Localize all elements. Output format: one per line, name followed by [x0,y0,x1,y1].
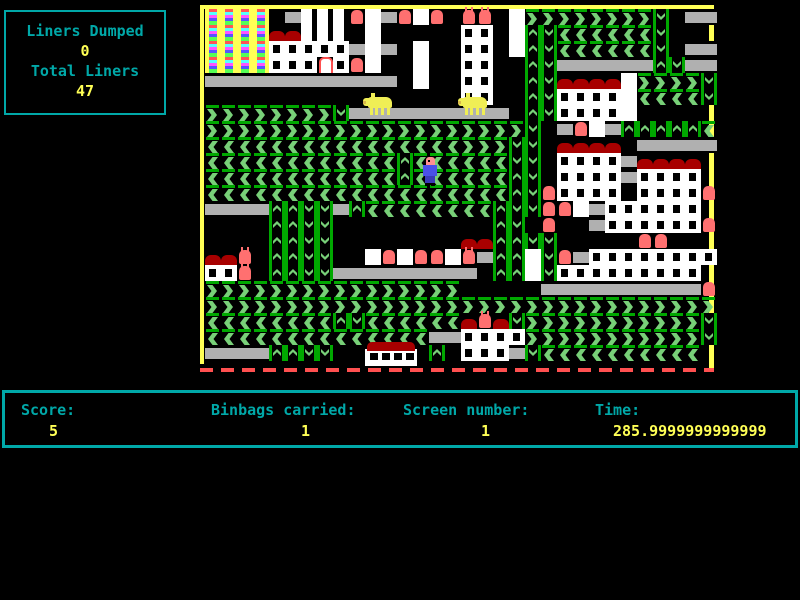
tile-conveyor-up [285,217,301,233]
tile-building-window [637,185,653,201]
tile-road [589,217,605,233]
tile-building-wall [509,41,525,57]
tile-conveyor-right [317,121,333,137]
tile-road [365,265,381,281]
tile-road [557,281,573,297]
tile-conveyor-right [221,121,237,137]
tile-building-window [637,217,653,233]
tile-conveyor-left [445,153,461,169]
tile-road [637,281,653,297]
tile-building-window [605,105,621,121]
tile-white-pillars [333,25,349,41]
tile-building-wall [525,265,541,281]
tile-building-wall [445,249,461,265]
tile-red-roof [477,233,493,249]
tile-building-window [461,73,477,89]
tile-conveyor-left [461,169,477,185]
tile-conveyor-down [653,25,669,41]
playfield-border-left [200,5,204,364]
tile-conveyor-up [525,105,541,121]
tile-conveyor-right [621,297,637,313]
tile-binbag-handles [477,9,493,25]
tile-road [685,9,701,25]
tile-road [637,57,653,73]
tile-conveyor-up [269,217,285,233]
tile-road [621,153,637,169]
tile-conveyor-left [445,313,461,329]
tile-red-roof [461,233,477,249]
status-field-binbags-carried: Binbags carried:1 [211,401,356,419]
tile-conveyor-left [493,153,509,169]
pig-sprite [363,92,393,115]
tile-conveyor-left [397,201,413,217]
tile-conveyor-left [269,313,285,329]
tile-conveyor-right [317,105,333,121]
tile-conveyor-right [653,313,669,329]
tile-road [461,265,477,281]
tile-conveyor-down [317,265,333,281]
tile-rainbow-flat [221,57,237,73]
tile-conveyor-up [493,217,509,233]
tile-conveyor-left [573,345,589,361]
tile-conveyor-right [669,73,685,89]
tile-conveyor-up [333,313,349,329]
total-liners-label: Total Liners [6,61,164,81]
tile-conveyor-right [605,9,621,25]
tile-conveyor-right [349,121,365,137]
tile-conveyor-left [301,169,317,185]
tile-building-wall [397,249,413,265]
tile-conveyor-left [637,345,653,361]
tile-conveyor-left [205,185,221,201]
tile-building-window [557,105,573,121]
tile-conveyor-left [269,137,285,153]
tile-building-window [685,169,701,185]
tile-road [253,345,269,361]
tile-conveyor-left [221,329,237,345]
tile-conveyor-left [237,185,253,201]
tile-road [253,201,269,217]
tile-conveyor-right [445,281,461,297]
tile-conveyor-left [381,185,397,201]
tile-building-window [669,265,685,281]
tile-road [685,137,701,153]
playfield[interactable] [200,5,714,375]
tile-conveyor-down [509,137,525,153]
tile-conveyor-left [413,201,429,217]
tile-conveyor-left [317,185,333,201]
tile-conveyor-left [285,137,301,153]
tile-building-window [685,217,701,233]
tile-building-window [333,41,349,57]
tile-building-window [621,201,637,217]
tile-conveyor-left [221,153,237,169]
tile-building-wall [365,41,381,57]
tile-building-window [477,345,493,361]
tile-building-window [461,57,477,73]
tile-conveyor-down [301,201,317,217]
tile-conveyor-down [541,233,557,249]
tile-building-window [637,201,653,217]
tile-building-wall [365,57,381,73]
tile-conveyor-right [477,297,493,313]
tile-conveyor-right [605,329,621,345]
tile-building-wall [573,201,589,217]
tile-road [269,73,285,89]
tile-conveyor-down [509,153,525,169]
tile-rainbow-flat [253,41,269,57]
tile-conveyor-down [525,201,541,217]
tile-conveyor-up [493,249,509,265]
tile-conveyor-right [397,297,413,313]
tile-conveyor-up [637,121,653,137]
tile-conveyor-right [413,281,429,297]
tile-road [621,169,637,185]
tile-conveyor-right [269,105,285,121]
tile-conveyor-up [525,73,541,89]
tile-conveyor-left [381,169,397,185]
tile-road [349,73,365,89]
tile-conveyor-down [701,89,717,105]
tile-road [333,201,349,217]
tile-conveyor-left [285,153,301,169]
tile-conveyor-left [397,185,413,201]
tile-conveyor-left [285,169,301,185]
tile-building-wall [509,9,525,25]
tile-conveyor-down [317,249,333,265]
tile-building-window [685,201,701,217]
tile-conveyor-right [237,105,253,121]
tile-road [557,121,573,137]
tile-conveyor-right [685,297,701,313]
tile-building-window [621,249,637,265]
tile-building-window [509,329,525,345]
tile-rainbow-flat [205,41,221,57]
tile-binbag [637,233,653,249]
tile-conveyor-right [381,121,397,137]
tile-conveyor-down [525,137,541,153]
tile-building-window [605,89,621,105]
tile-conveyor-left [589,345,605,361]
tile-conveyor-down [541,73,557,89]
tile-road [637,137,653,153]
tile-building-window [573,169,589,185]
playfield-border-bottom [200,368,714,372]
tile-conveyor-left [413,313,429,329]
tile-conveyor-down [653,9,669,25]
tile-conveyor-right [637,297,653,313]
tile-conveyor-down [301,249,317,265]
tile-conveyor-left [349,153,365,169]
tile-conveyor-left [237,313,253,329]
tile-conveyor-left [333,329,349,345]
tile-conveyor-down [317,201,333,217]
tile-road [685,41,701,57]
tile-rainbow-flat [221,41,237,57]
liners-info-box: Liners Dumped 0 Total Liners 47 [4,10,166,115]
tile-conveyor-down [701,329,717,345]
tile-conveyor-left [701,121,717,137]
tile-conveyor-down [301,345,317,361]
tile-red-roof [557,137,573,153]
tile-rainbow-flat [253,9,269,25]
tile-road [397,265,413,281]
tile-conveyor-left [557,345,573,361]
tile-conveyor-left [605,345,621,361]
tile-building-window [461,41,477,57]
tile-building-window [685,249,701,265]
tile-conveyor-up [525,41,541,57]
tile-conveyor-left [301,313,317,329]
tile-binbag [573,121,589,137]
tile-binbag [701,217,717,233]
tile-road [621,57,637,73]
tile-conveyor-left [429,185,445,201]
tile-conveyor-down [541,249,557,265]
tile-conveyor-right [573,9,589,25]
tile-road [349,265,365,281]
tile-conveyor-left [253,313,269,329]
tile-building-window [461,345,477,361]
tile-building-wall [413,41,429,57]
tile-conveyor-left [541,345,557,361]
tile-building-window [493,329,509,345]
tile-road [221,201,237,217]
tile-conveyor-left [365,201,381,217]
tile-building-window [605,249,621,265]
tile-conveyor-left [317,313,333,329]
tile-conveyor-right [301,281,317,297]
tile-conveyor-right [333,281,349,297]
tile-rainbow-flat [237,57,253,73]
tile-red-roof [589,137,605,153]
tile-road [221,345,237,361]
tile-binbag [701,281,717,297]
tile-conveyor-up [285,345,301,361]
tile-conveyor-right [253,281,269,297]
tile-conveyor-up [525,89,541,105]
tile-conveyor-left [429,313,445,329]
tile-building-window [477,329,493,345]
tile-building-window [589,185,605,201]
tile-conveyor-right [445,121,461,137]
tile-conveyor-right [573,297,589,313]
tile-conveyor-left [253,185,269,201]
tile-white-pillars [301,25,317,41]
tile-red-roof [285,25,301,41]
tile-conveyor-up [509,249,525,265]
tile-conveyor-right [365,297,381,313]
tile-conveyor-right [221,105,237,121]
tile-conveyor-right [413,297,429,313]
tile-conveyor-down [701,73,717,89]
tile-conveyor-left [429,137,445,153]
tile-conveyor-right [301,121,317,137]
tile-conveyor-right [605,313,621,329]
tile-conveyor-right [397,121,413,137]
tile-building-window [477,57,493,73]
tile-conveyor-left [365,137,381,153]
tile-conveyor-right [621,313,637,329]
tile-conveyor-right [621,9,637,25]
tile-conveyor-up [269,249,285,265]
tile-conveyor-up [397,153,413,169]
tile-conveyor-right [429,121,445,137]
tile-road [381,41,397,57]
tile-conveyor-left [637,25,653,41]
tile-rainbow-flat [253,25,269,41]
tile-red-roof [557,73,573,89]
tile-conveyor-up [349,201,365,217]
tile-conveyor-left [349,169,365,185]
tile-road [605,281,621,297]
tile-conveyor-left [477,169,493,185]
tile-conveyor-left [493,169,509,185]
tile-conveyor-right [573,329,589,345]
tile-binbag-handles [237,249,253,265]
tile-conveyor-left [589,41,605,57]
tile-conveyor-right [685,329,701,345]
tile-conveyor-left [365,185,381,201]
tile-conveyor-up [493,265,509,281]
tile-conveyor-left [365,169,381,185]
tile-road [605,57,621,73]
tile-road [685,281,701,297]
tile-conveyor-left [301,185,317,201]
tile-conveyor-left [477,201,493,217]
tile-conveyor-left [269,185,285,201]
tile-conveyor-right [589,297,605,313]
tile-conveyor-left [365,313,381,329]
tile-road [205,345,221,361]
tile-white-liner-bin [317,57,333,73]
tile-conveyor-right [653,297,669,313]
tile-building-window [605,217,621,233]
tile-building-window [589,89,605,105]
tile-conveyor-left [237,329,253,345]
tile-conveyor-down [541,265,557,281]
tile-building-window [653,249,669,265]
liners-dumped-value: 0 [6,41,164,61]
tile-conveyor-left [205,153,221,169]
tile-conveyor-up [621,121,637,137]
tile-conveyor-right [317,297,333,313]
tile-conveyor-left [333,169,349,185]
tile-conveyor-right [429,297,445,313]
tile-conveyor-left [445,169,461,185]
tile-conveyor-left [397,313,413,329]
tile-conveyor-up [285,233,301,249]
tile-conveyor-up [269,233,285,249]
tile-conveyor-left [365,153,381,169]
tile-building-window [557,153,573,169]
tile-binbag [429,249,445,265]
tile-conveyor-left [253,169,269,185]
status-bar: Score:5Binbags carried:1Screen number:1T… [2,390,798,448]
tile-conveyor-left [605,41,621,57]
tile-conveyor-left [557,41,573,57]
tile-conveyor-down [509,217,525,233]
tile-conveyor-right [461,137,477,153]
tile-building-window [637,265,653,281]
tile-conveyor-right [621,329,637,345]
tile-road [669,281,685,297]
tile-conveyor-left [301,329,317,345]
tile-conveyor-left [205,169,221,185]
tile-binbag [653,233,669,249]
tile-road [205,73,221,89]
tile-conveyor-right [605,297,621,313]
tile-conveyor-left [237,169,253,185]
tile-conveyor-right [589,329,605,345]
tile-conveyor-up [397,169,413,185]
tile-conveyor-left [381,153,397,169]
tile-conveyor-left [285,313,301,329]
tile-conveyor-right [269,121,285,137]
tile-building-window [301,41,317,57]
tile-conveyor-right [253,105,269,121]
tile-rainbow-flat [205,9,221,25]
tile-conveyor-right [637,73,653,89]
status-field-screen-number: Screen number:1 [403,401,529,419]
tile-conveyor-down [509,201,525,217]
tile-conveyor-left [317,169,333,185]
tile-conveyor-down [525,169,541,185]
tile-building-window [605,265,621,281]
tile-conveyor-right [669,313,685,329]
tile-conveyor-left [621,41,637,57]
tile-red-roof [637,153,653,169]
tile-road [621,281,637,297]
tile-conveyor-left [285,185,301,201]
tile-conveyor-up [509,169,525,185]
tile-conveyor-right [429,281,445,297]
tile-conveyor-left [269,169,285,185]
tile-building-window [589,105,605,121]
tile-building-window [461,25,477,41]
tile-conveyor-up [285,201,301,217]
tile-conveyor-right [285,297,301,313]
tile-binbag [541,201,557,217]
tile-conveyor-left [333,137,349,153]
tile-building-window [493,345,509,361]
tile-red-roof [669,153,685,169]
tile-conveyor-right [253,297,269,313]
tile-rainbow-flat [237,25,253,41]
tile-conveyor-up [285,265,301,281]
status-label: Screen number: [403,401,529,419]
tile-conveyor-right [589,313,605,329]
tile-conveyor-right [525,9,541,25]
tile-road [685,57,701,73]
tile-conveyor-right [381,281,397,297]
tile-conveyor-left [605,25,621,41]
tile-binbag [429,9,445,25]
tile-conveyor-left [477,153,493,169]
tile-conveyor-down [653,41,669,57]
tile-conveyor-left [461,185,477,201]
tile-conveyor-right [285,281,301,297]
tile-building-window [669,217,685,233]
tile-conveyor-left [653,345,669,361]
tile-road [429,105,445,121]
tile-conveyor-right [541,313,557,329]
tile-conveyor-down [525,153,541,169]
tile-building-wall [365,249,381,265]
tile-building-window [301,57,317,73]
tile-road [493,105,509,121]
tile-conveyor-left [445,185,461,201]
